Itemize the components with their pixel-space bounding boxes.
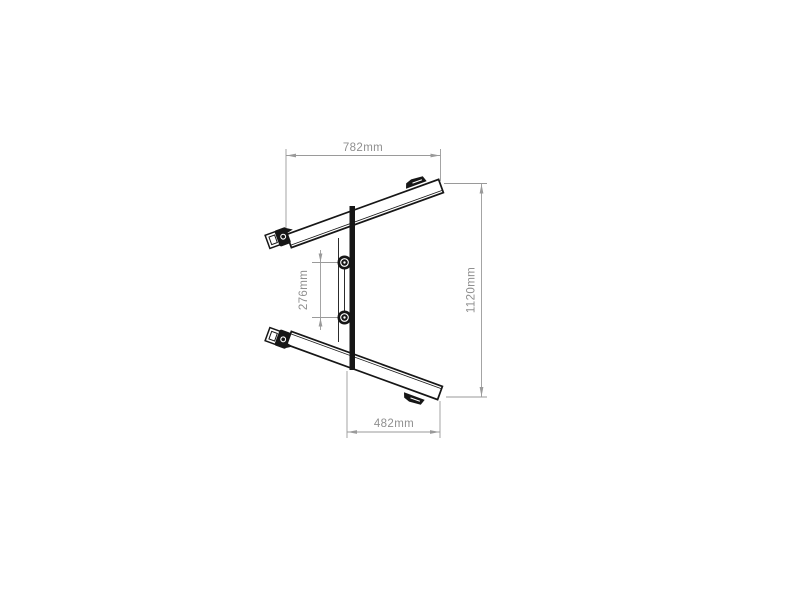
- technical-drawing: 782mm 1120mm 276mm 482mm: [0, 0, 800, 600]
- center-post: [350, 206, 356, 370]
- knob-top: [338, 256, 352, 270]
- bottom-arm: [287, 331, 443, 399]
- dim-top-width-label: 782mm: [343, 142, 383, 154]
- dim-overall-height-arrow-top: [480, 184, 484, 194]
- dim-overall-height-label: 1120mm: [466, 267, 478, 313]
- dim-bracket-spacing-arrow-top: [319, 254, 323, 263]
- dim-top-width-arrow-left: [287, 154, 297, 158]
- dim-bottom-width-arrow-left: [348, 430, 358, 434]
- mounting-plate: [339, 238, 345, 342]
- dim-bracket-spacing-label: 276mm: [298, 270, 310, 310]
- top-arm-body: [287, 179, 444, 247]
- bottom-arm-edge-line: [291, 334, 442, 389]
- top-arm-edge-line: [291, 190, 443, 245]
- knob-bottom: [338, 311, 352, 325]
- bottom-arm-body: [287, 331, 443, 399]
- dim-bottom-width-label: 482mm: [374, 418, 414, 430]
- knob-top-center: [343, 261, 345, 263]
- drawing-svg: 782mm 1120mm 276mm 482mm: [0, 0, 800, 600]
- dim-overall-height-arrow-bottom: [480, 387, 484, 397]
- dim-bracket-spacing-arrow-bottom: [319, 318, 323, 327]
- dim-bracket-spacing: 276mm: [298, 250, 340, 330]
- knob-bottom-center: [343, 316, 345, 318]
- top-arm: [287, 179, 444, 247]
- dim-bottom-width-arrow-right: [430, 430, 440, 434]
- dim-top-width-arrow-right: [431, 154, 441, 158]
- dim-overall-height: 1120mm: [444, 184, 487, 398]
